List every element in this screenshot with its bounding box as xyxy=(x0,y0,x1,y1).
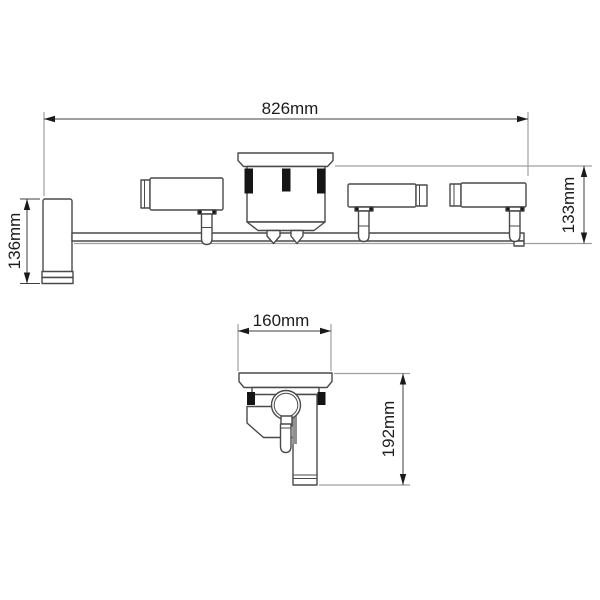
head1-stem xyxy=(202,214,213,245)
technical-drawing-page: 826mm 136mm xyxy=(0,0,600,600)
overall-width-label: 826mm xyxy=(262,99,319,118)
head1-plate-screw-left xyxy=(199,211,202,214)
arrowhead-bottom xyxy=(400,474,406,485)
head-height-label: 192mm xyxy=(379,401,398,458)
canopy-clip-left-side xyxy=(247,392,255,405)
head2-body xyxy=(348,184,416,207)
dimension-head-height: 192mm xyxy=(319,374,410,486)
arrowhead-left xyxy=(44,116,55,122)
arrowhead-top xyxy=(581,166,587,177)
head2-front-cap xyxy=(416,185,427,206)
canopy-width-label: 160mm xyxy=(253,311,310,330)
head3-body xyxy=(461,183,526,207)
arrowhead-bottom xyxy=(24,273,30,284)
head2-plate-screw-left xyxy=(356,208,359,211)
arrowhead-right xyxy=(320,328,331,334)
canopy-clip-right xyxy=(317,169,326,194)
head1-plate-screw-right xyxy=(212,211,215,214)
canopy-taper xyxy=(247,222,325,231)
spotlight-bar-technical-drawing: 826mm 136mm xyxy=(0,0,600,600)
dimension-canopy-width: 160mm xyxy=(238,311,331,371)
arrowhead-top xyxy=(400,374,406,385)
head3-plate-screw-left xyxy=(507,208,510,211)
canopy-clip-right-side xyxy=(318,392,326,405)
arrowhead-right xyxy=(517,116,528,122)
canopy-clip-middle xyxy=(282,169,291,192)
arrowhead-left xyxy=(238,328,249,334)
canopy-clip-left xyxy=(245,169,254,194)
end-cap-foot xyxy=(42,278,73,284)
head1-body xyxy=(150,178,223,210)
drop-height-label: 133mm xyxy=(559,177,578,234)
canopy-plate xyxy=(238,153,333,167)
front-view: 826mm 136mm xyxy=(5,99,592,284)
head3-plate-screw-right xyxy=(520,208,523,211)
spotlight-profile xyxy=(247,391,317,486)
head2-plate-screw-right xyxy=(369,208,372,211)
canopy-plate-side xyxy=(239,373,332,388)
gimbal-ring-outer xyxy=(272,391,301,420)
end-cap-body xyxy=(43,199,72,272)
side-view: 160mm 192mm xyxy=(238,311,410,485)
arrowhead-top xyxy=(24,199,30,210)
center-canopy xyxy=(238,153,333,244)
head1-rear-cap xyxy=(141,180,150,208)
end-cap-height-label: 136mm xyxy=(5,213,24,270)
head3-rear-cap xyxy=(450,184,461,206)
end-cap-band xyxy=(42,272,73,278)
dimension-end-cap-height: 136mm xyxy=(5,199,40,284)
arrowhead-bottom xyxy=(581,233,587,244)
end-cap xyxy=(42,199,73,284)
